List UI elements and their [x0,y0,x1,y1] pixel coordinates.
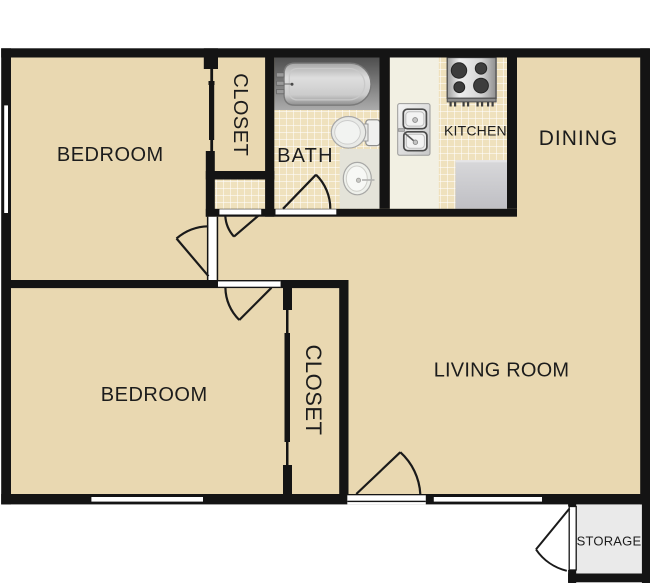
svg-text:KITCHEN: KITCHEN [444,123,507,139]
svg-text:STORAGE: STORAGE [577,534,642,549]
svg-text:BATH: BATH [277,145,334,167]
svg-text:CLOSET: CLOSET [301,344,326,435]
svg-text:LIVING ROOM: LIVING ROOM [434,360,570,382]
svg-text:DINING: DINING [539,127,619,150]
svg-text:BEDROOM: BEDROOM [57,144,164,166]
svg-text:CLOSET: CLOSET [229,73,251,156]
svg-text:BEDROOM: BEDROOM [101,384,208,406]
